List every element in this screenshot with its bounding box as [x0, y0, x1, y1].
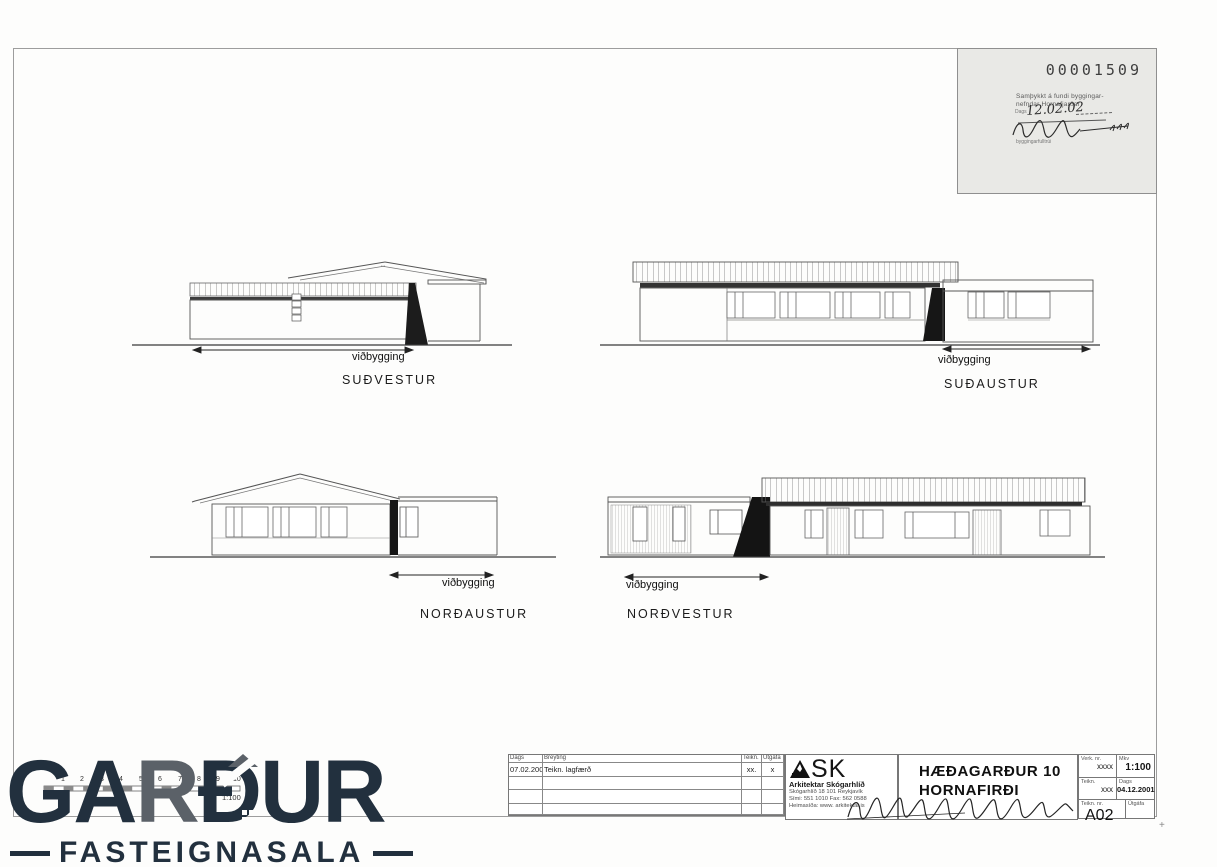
rev-empty-cell: [762, 804, 784, 816]
vent-strip: [292, 294, 301, 321]
project-title-line1: HÆÐAGARÐUR 10: [919, 762, 1077, 781]
brand-letter-r-house: R: [136, 741, 198, 841]
dim-label-nordvestur: viðbygging: [626, 579, 679, 591]
dimension-arrow: [943, 346, 1090, 352]
mkv-label: Mkv: [1117, 755, 1154, 762]
house-windows-icon: [242, 810, 255, 823]
rev-empty-cell: [543, 790, 742, 804]
info-cell-utgafa: Útgáfa: [1125, 799, 1155, 819]
info-cell-dags: Dags 04.12.2001: [1116, 777, 1155, 800]
rev-header-dags: Dags: [509, 755, 543, 763]
rev-row-change: Teikn. lagfærð: [543, 763, 742, 777]
rev-row-utgafa: x: [762, 763, 784, 777]
dim-label-sudaustur: viðbygging: [938, 354, 991, 366]
title-sudaustur: SUÐAUSTUR: [944, 377, 1040, 391]
rev-empty-cell: [509, 790, 543, 804]
elevation-nordvestur-drawing: [600, 458, 1110, 593]
ask-logo-icon: [789, 759, 811, 779]
brand-wordmark: GARÐUR: [6, 740, 385, 843]
dags-value: 04.12.2001: [1117, 785, 1154, 794]
titleblock-signature-scribble: [845, 795, 1080, 825]
stamp-signature-caption: byggingarfulltrúi: [1016, 139, 1051, 145]
house-right-section: [428, 280, 486, 341]
revision-table: Dags Breyting Teikn. Útgáfa 07.02.2002: …: [508, 754, 785, 816]
info-cell-teiknnr: Teikn. nr. A02: [1078, 799, 1126, 819]
rev-row-teikn: xx.: [742, 763, 762, 777]
teikn-label: Teikn.: [1079, 778, 1116, 785]
info-cell-mkv: Mkv 1:100: [1116, 754, 1155, 778]
rev-empty-cell: [762, 777, 784, 791]
rev-empty-cell: [742, 804, 762, 816]
main-windows: [805, 508, 1070, 555]
dim-label-nordaustur: viðbygging: [442, 577, 495, 589]
utgafa-label: Útgáfa: [1126, 800, 1154, 807]
rev-header-utgafa: Útgáfa: [762, 755, 784, 763]
title-nordvestur: NORÐVESTUR: [627, 607, 735, 621]
rev-row-date: 07.02.2002:: [509, 763, 543, 777]
dark-gable-infill: [405, 283, 428, 345]
gable-roof: [192, 474, 400, 503]
info-cell-verknr: Verk. nr. xxxx: [1078, 754, 1117, 778]
registration-mark: +: [1159, 820, 1165, 831]
architect-name: Arkitektar Skógarhlíð: [789, 780, 894, 789]
title-sudvestur: SUÐVESTUR: [342, 373, 437, 387]
rev-empty-cell: [543, 777, 742, 791]
gable-roof-lines: [288, 262, 486, 284]
mkv-value: 1:100: [1117, 762, 1154, 773]
brand-subtitle: FASTEIGNASALA: [59, 836, 364, 867]
ask-logo-text: SK: [811, 759, 846, 779]
brand-subtitle-row: FASTEIGNASALA: [10, 836, 413, 867]
elevation-sudvestur-drawing: [128, 250, 520, 395]
stamp-text-line1: Samþykkt á fundi byggingar-: [1016, 93, 1104, 100]
rev-empty-cell: [762, 790, 784, 804]
rev-empty-cell: [742, 777, 762, 791]
rev-empty-cell: [543, 804, 742, 816]
dim-label-sudvestur: viðbygging: [352, 351, 405, 363]
rev-empty-cell: [509, 777, 543, 791]
brand-letters-ga: GA: [6, 741, 136, 841]
rev-header-teikn: Teikn.: [742, 755, 762, 763]
rev-header-breyting: Breyting: [543, 755, 742, 763]
windows: [727, 292, 910, 318]
gardur-watermark-logo: GARÐUR FASTEIGNASALA: [4, 752, 424, 867]
brand-letters-dur: ÐUR: [198, 741, 385, 841]
verknr-label: Verk. nr.: [1079, 755, 1116, 762]
info-cell-teikn: Teikn. xxx: [1078, 777, 1117, 800]
approval-stamp: 00001509 Samþykkt á fundi byggingar- nef…: [957, 48, 1157, 194]
extension: [398, 497, 497, 555]
extension-windows: [968, 292, 1050, 320]
title-nordaustur: NORÐAUSTUR: [420, 607, 528, 621]
dark-strip: [390, 500, 398, 555]
drawing-sheet: 00001509 Samþykkt á fundi byggingar- nef…: [0, 0, 1217, 867]
subtitle-right-bar: [373, 851, 413, 856]
verknr-value: xxxx: [1079, 762, 1116, 771]
dags-label: Dags: [1117, 778, 1154, 785]
teikn-value: xxx: [1079, 785, 1116, 794]
document-number: 00001509: [1046, 61, 1142, 79]
elevation-nordaustur-drawing: [148, 463, 560, 588]
dark-gable-infill: [923, 288, 945, 341]
extension-facade: [190, 283, 416, 339]
sheet-number: A02: [1079, 807, 1125, 825]
windows: [226, 507, 347, 537]
rev-empty-cell: [742, 790, 762, 804]
rev-empty-cell: [509, 804, 543, 816]
subtitle-left-bar: [10, 851, 50, 856]
teiknnr-label: Teikn. nr.: [1079, 800, 1125, 807]
